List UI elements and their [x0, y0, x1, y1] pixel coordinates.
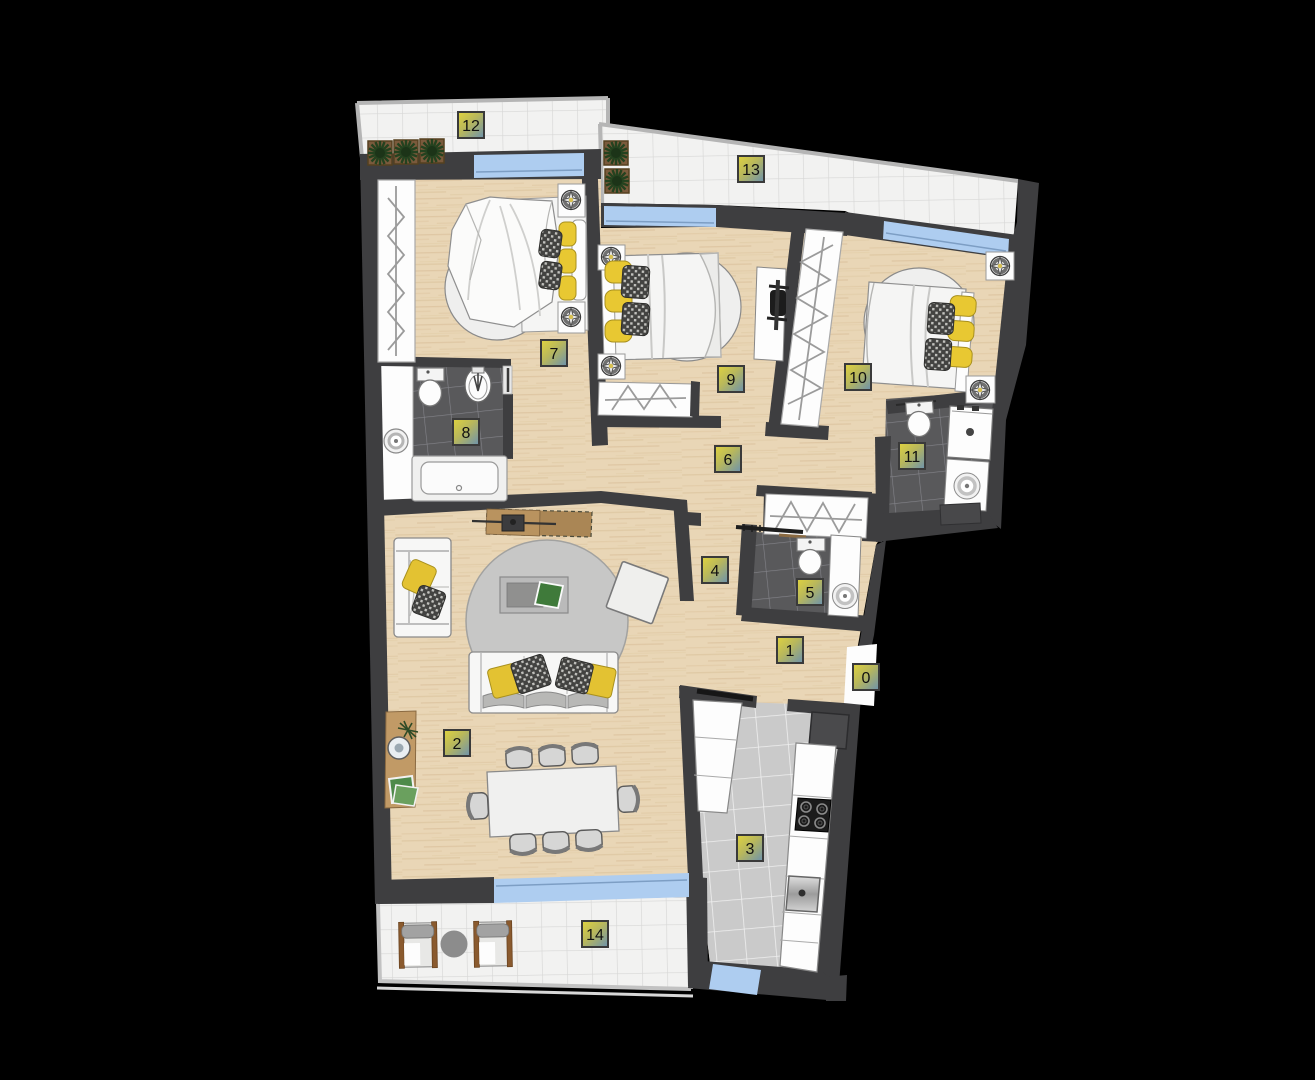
- svg-text:7: 7: [550, 346, 559, 363]
- svg-text:2: 2: [453, 736, 462, 753]
- svg-text:0: 0: [862, 670, 871, 687]
- svg-text:12: 12: [462, 118, 480, 135]
- svg-text:5: 5: [806, 585, 815, 602]
- svg-text:6: 6: [724, 452, 733, 469]
- svg-text:13: 13: [742, 162, 760, 179]
- svg-text:10: 10: [849, 370, 867, 387]
- svg-text:14: 14: [586, 927, 604, 944]
- svg-text:11: 11: [904, 449, 921, 466]
- svg-text:8: 8: [462, 425, 471, 442]
- svg-text:3: 3: [746, 841, 755, 858]
- svg-text:9: 9: [727, 372, 736, 389]
- svg-text:4: 4: [711, 563, 720, 580]
- svg-text:1: 1: [786, 643, 795, 660]
